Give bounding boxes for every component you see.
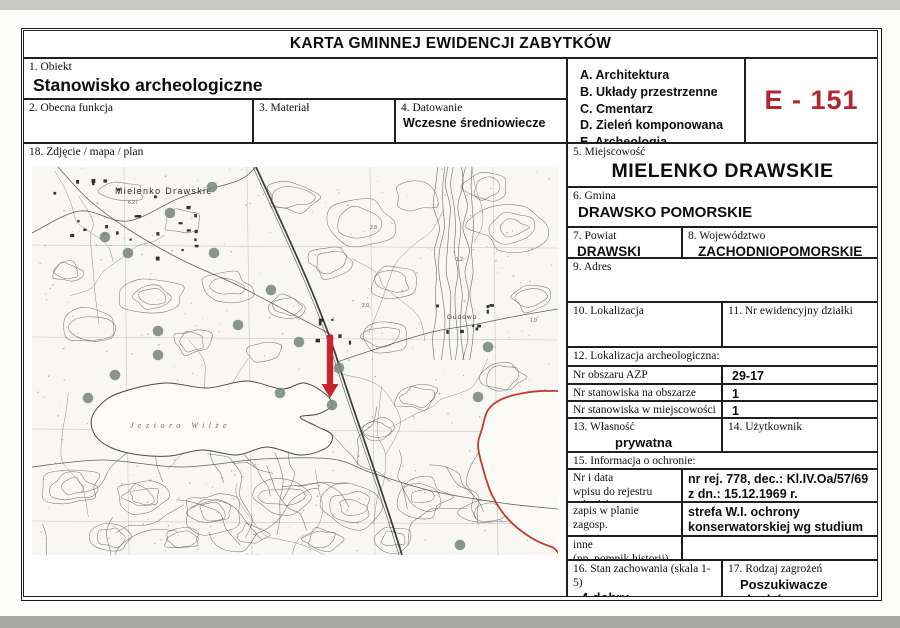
field-nr-dzialki-label: 11. Nr ewidencyjny działki	[728, 305, 872, 319]
field-obiekt-value: Stanowisko archeologiczne	[29, 75, 561, 96]
site-dot	[233, 320, 244, 331]
map-spot-height: 1.0	[530, 318, 537, 324]
field-uzytkownik-label: 14. Użytkownik	[728, 421, 872, 435]
field-miejscowosc-label: 5. Miejscowość	[573, 146, 872, 160]
site-dot	[275, 388, 286, 399]
inne-value-cell	[682, 536, 878, 560]
site-dot	[165, 208, 176, 219]
field-gmina-label: 6. Gmina	[573, 190, 872, 204]
field-miejscowosc-value: MIELENKO DRAWSKIE	[573, 160, 872, 184]
field-zagrozenia: 17. Rodzaj zagrożeń Poszukiwacze skarbów	[722, 560, 878, 597]
site-dot	[327, 400, 338, 411]
rejestr-label: Nr i data wpisu do rejestru zabytków	[573, 472, 676, 502]
field-lokalizacja: 10. Lokalizacja	[567, 302, 722, 347]
field-powiat-label: 7. Powiat	[573, 230, 676, 244]
field-zdjecie-label: 18. Zdjęcie / mapa / plan	[29, 146, 561, 160]
field-obecna-funkcja-label: 2. Obecna funkcja	[29, 102, 247, 116]
field-adres: 9. Adres	[567, 258, 878, 302]
field-miejscowosc: 5. Miejscowość MIELENKO DRAWSKIE	[567, 143, 878, 187]
field-wojewodztwo: 8. Województwo ZACHODNIOPOMORSKIE	[682, 227, 878, 258]
category-list: A. Architektura B. Układy przestrzenne C…	[567, 58, 745, 143]
field-zagrozenia-label: 17. Rodzaj zagrożeń	[728, 563, 872, 577]
azp-stanowisko-obszar-label: Nr stanowiska na obszarze AZP	[573, 387, 716, 401]
field-stan-zachowania-label: 16. Stan zachowania (skala 1-5)	[573, 563, 716, 590]
field-wojewodztwo-value: ZACHODNIOPOMORSKIE	[688, 244, 872, 258]
site-dot	[473, 392, 484, 403]
azp-stanowisko-obszar-value-cell: 1	[722, 384, 878, 401]
site-dot	[100, 232, 111, 243]
site-dot	[294, 337, 305, 348]
map-spot-height: 2.8	[370, 225, 377, 231]
rejestr-value-cell: nr rej. 778, dec.: Kl.IV.Oa/57/69 z dn.:…	[682, 469, 878, 502]
inne-label: inne (np. pomnik historii)	[573, 539, 676, 560]
azp-stanowisko-miejsc-label: Nr stanowiska w miejscowości	[573, 404, 716, 418]
site-dot	[266, 285, 277, 296]
map-spot-height: 2.0	[362, 303, 369, 309]
azp-stanowisko-miejsc-label-cell: Nr stanowiska w miejscowości	[567, 401, 722, 418]
card-title-bar: KARTA GMINNEJ EWIDENCJI ZABYTKÓW	[23, 30, 878, 58]
category-item: B. Układy przestrzenne	[580, 84, 740, 101]
field-obiekt: 1. Obiekt Stanowisko archeologiczne	[23, 58, 567, 99]
field-datowanie: 4. Datowanie Wczesne średniowiecze	[395, 99, 567, 143]
field-uzytkownik: 14. Użytkownik	[722, 418, 878, 452]
field-gmina-value: DRAWSKO POMORSKIE	[573, 204, 872, 222]
map-spot-height: 6.27	[128, 200, 138, 206]
section-lokalizacja-arch-label: 12. Lokalizacja archeologiczna:	[573, 350, 872, 364]
field-gmina: 6. Gmina DRAWSKO POMORSKIE	[567, 187, 878, 227]
field-obecna-funkcja: 2. Obecna funkcja	[23, 99, 253, 143]
field-material: 3. Materiał	[253, 99, 395, 143]
rejestr-label-cell: Nr i data wpisu do rejestru zabytków	[567, 469, 682, 502]
azp-obszar-value-cell: 29-17	[722, 366, 878, 384]
page-title: KARTA GMINNEJ EWIDENCJI ZABYTKÓW	[290, 35, 611, 53]
site-dot	[209, 248, 220, 259]
azp-obszar-label-cell: Nr obszaru AZP	[567, 366, 722, 384]
rejestr-value: nr rej. 778, dec.: Kl.IV.Oa/57/69 z dn.:…	[688, 472, 872, 502]
map-label: Jezioro Wilże	[130, 421, 231, 430]
section-ochrona-header: 15. Informacja o ochronie:	[567, 452, 878, 469]
site-dot	[334, 363, 345, 374]
lake-wilze	[91, 381, 332, 456]
card-number: E - 151	[764, 85, 858, 116]
topographic-map: Mielenko DrawskieJezioro WilżeGudowo6.27…	[32, 167, 558, 555]
site-dot	[123, 248, 134, 259]
category-item: E. Archeologia	[580, 134, 740, 143]
field-wojewodztwo-label: 8. Województwo	[688, 230, 872, 244]
site-dot	[207, 182, 218, 193]
azp-stanowisko-miejsc-value-cell: 1	[722, 401, 878, 418]
field-obiekt-label: 1. Obiekt	[29, 61, 561, 75]
field-datowanie-label: 4. Datowanie	[401, 102, 561, 116]
site-dot	[483, 342, 494, 353]
field-datowanie-value: Wczesne średniowiecze	[401, 116, 561, 131]
category-item: A. Architektura	[580, 67, 740, 84]
field-powiat: 7. Powiat DRAWSKI	[567, 227, 682, 258]
field-stan-zachowania: 16. Stan zachowania (skala 1-5) 4-dobry	[567, 560, 722, 597]
field-stan-zachowania-value: 4-dobry	[573, 590, 716, 597]
azp-stanowisko-obszar-label-cell: Nr stanowiska na obszarze AZP	[567, 384, 722, 401]
plan-zagosp-label-cell: zapis w planie zagosp. przestrzennego	[567, 502, 682, 536]
site-dot	[83, 393, 94, 404]
azp-stanowisko-miejsc-value: 1	[728, 404, 872, 418]
site-dot	[153, 326, 164, 337]
inne-label-cell: inne (np. pomnik historii)	[567, 536, 682, 560]
field-material-label: 3. Materiał	[259, 102, 389, 116]
category-item: C. Cmentarz	[580, 101, 740, 118]
map-spot-height: 1.2	[456, 257, 463, 263]
site-dot	[110, 370, 121, 381]
plan-zagosp-label: zapis w planie zagosp. przestrzennego	[573, 505, 676, 536]
section-ochrona-label: 15. Informacja o ochronie:	[573, 455, 872, 469]
field-zagrozenia-value: Poszukiwacze skarbów	[728, 577, 872, 597]
field-lokalizacja-label: 10. Lokalizacja	[573, 305, 716, 319]
azp-obszar-label: Nr obszaru AZP	[573, 369, 716, 383]
field-wlasnosc: 13. Własność prywatna	[567, 418, 722, 452]
field-nr-dzialki: 11. Nr ewidencyjny działki	[722, 302, 878, 347]
field-wlasnosc-label: 13. Własność	[573, 421, 716, 435]
category-item: D. Zieleń komponowana	[580, 117, 740, 134]
field-powiat-value: DRAWSKI	[573, 244, 676, 258]
azp-obszar-value: 29-17	[728, 369, 872, 384]
plan-zagosp-value: strefa W.I. ochrony konserwatorskiej wg …	[688, 505, 872, 536]
map-label: Gudowo	[447, 314, 477, 321]
scan-edge-top	[0, 0, 900, 10]
section-lokalizacja-arch-header: 12. Lokalizacja archeologiczna:	[567, 347, 878, 366]
site-dot	[455, 540, 466, 551]
map-label: Mielenko Drawskie	[115, 186, 213, 196]
field-zdjecie-mapa: 18. Zdjęcie / mapa / plan Mielenko Draws…	[23, 143, 567, 597]
plan-zagosp-value-cell: strefa W.I. ochrony konserwatorskiej wg …	[682, 502, 878, 536]
field-wlasnosc-value: prywatna	[573, 435, 716, 451]
azp-stanowisko-obszar-value: 1	[728, 387, 872, 401]
field-adres-label: 9. Adres	[573, 261, 872, 275]
scan-edge-bottom	[0, 616, 900, 628]
site-dot	[153, 350, 164, 361]
card-number-box: E - 151	[745, 58, 878, 143]
